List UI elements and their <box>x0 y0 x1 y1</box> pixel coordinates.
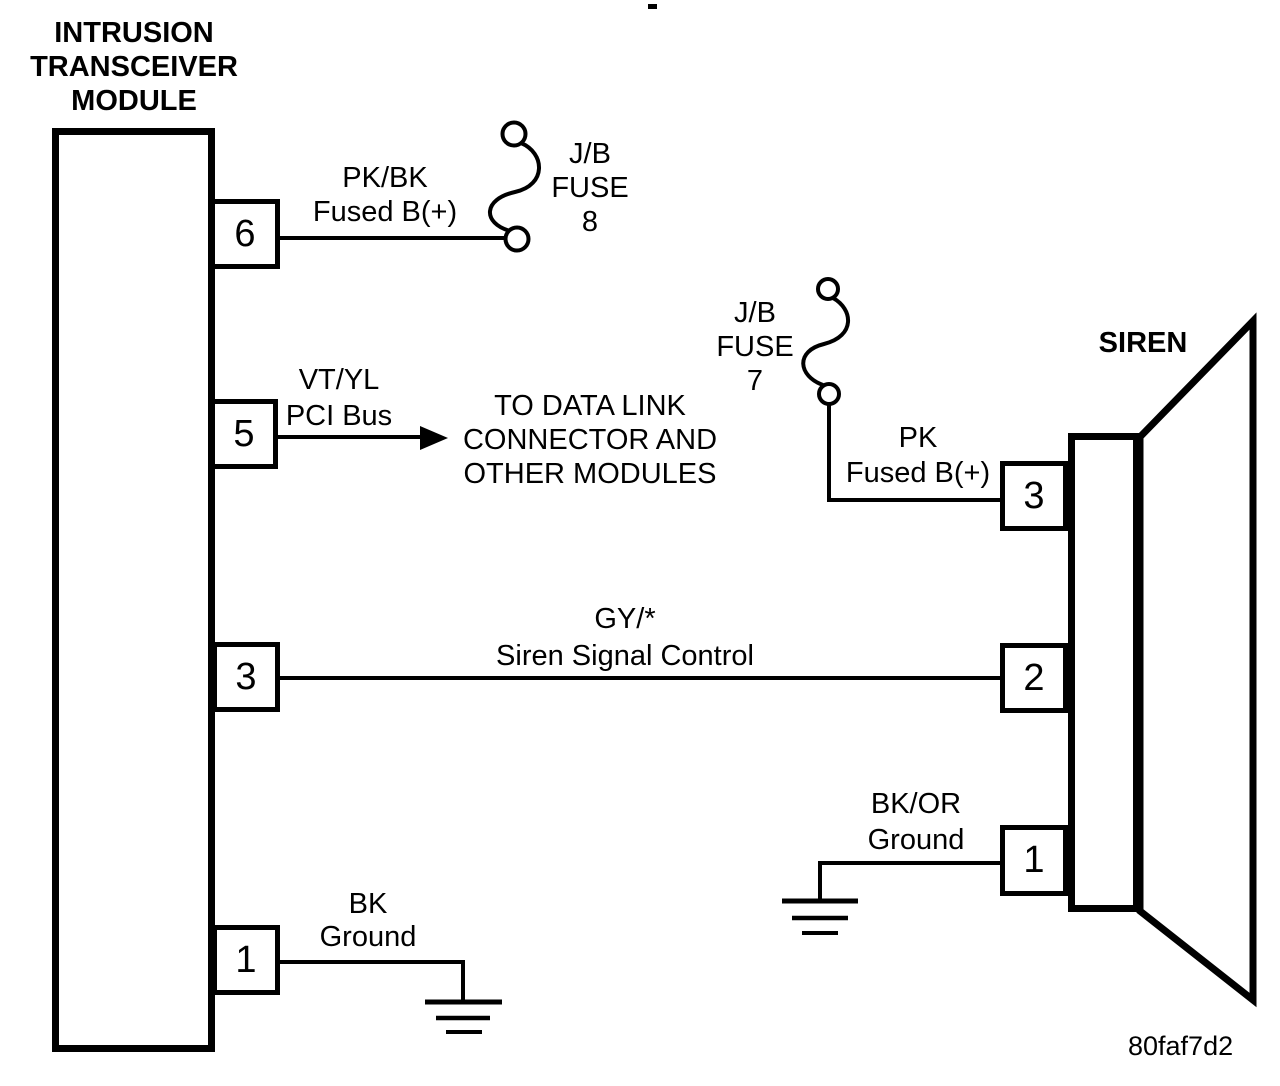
siren-horn <box>1140 321 1253 1000</box>
wire-function: Fused B(+) <box>285 195 485 229</box>
module-pin-1-number: 1 <box>235 939 256 982</box>
wire-label-siren-ground: BK/OR Ground <box>816 786 1016 858</box>
fuse-number: 8 <box>515 205 665 239</box>
wire-label-fused-b-siren: PK Fused B(+) <box>818 421 1018 491</box>
wire-function: PCI Bus <box>239 398 439 434</box>
module-pin-6-number: 6 <box>234 213 255 256</box>
wire-siren-ground <box>820 863 1002 900</box>
figure-code: 80faf7d2 <box>1128 1031 1268 1062</box>
siren-pin-2: 2 <box>1000 643 1068 713</box>
module-pin-3-number: 3 <box>235 656 256 699</box>
wire-color: PK <box>818 421 1018 456</box>
annotation-line3: OTHER MODULES <box>437 457 743 491</box>
siren-pin-2-number: 2 <box>1023 657 1044 700</box>
wire-label-module-ground: BK Ground <box>268 888 468 954</box>
wire-function: Ground <box>816 822 1016 858</box>
fuse-location: J/B <box>515 137 665 171</box>
wire-color: VT/YL <box>239 362 439 398</box>
ground-symbol-module <box>425 1002 502 1032</box>
wire-color: BK/OR <box>816 786 1016 822</box>
wire-module-ground <box>278 962 463 1001</box>
wiring-diagram: INTRUSION TRANSCEIVER MODULE SIREN 6 5 3… <box>0 0 1280 1086</box>
annotation-line2: CONNECTOR AND <box>437 423 743 457</box>
module-title: INTRUSION TRANSCEIVER MODULE <box>8 16 260 118</box>
module-outline <box>56 132 212 1049</box>
module-pin-6: 6 <box>210 199 280 269</box>
wire-label-siren-signal: GY/* Siren Signal Control <box>475 601 775 675</box>
data-link-annotation: TO DATA LINK CONNECTOR AND OTHER MODULES <box>437 389 743 491</box>
siren-pin-1-number: 1 <box>1023 839 1044 882</box>
wire-function: Fused B(+) <box>818 456 1018 491</box>
module-pin-3: 3 <box>212 642 280 712</box>
fuse-type: FUSE <box>515 171 665 205</box>
fuse-number: 7 <box>680 364 830 398</box>
fuse-type: FUSE <box>680 330 830 364</box>
fuse-location: J/B <box>680 296 830 330</box>
wire-function: Siren Signal Control <box>475 638 775 675</box>
fuse-7-label: J/B FUSE 7 <box>680 296 830 398</box>
scan-artifact <box>648 4 657 9</box>
module-title-line2: TRANSCEIVER <box>8 50 260 84</box>
wire-color: PK/BK <box>285 161 485 195</box>
ground-symbol-siren <box>782 901 858 933</box>
siren-title: SIREN <box>1043 326 1243 360</box>
wire-label-pci-bus: VT/YL PCI Bus <box>239 362 439 434</box>
module-title-line1: INTRUSION <box>8 16 260 50</box>
wire-function: Ground <box>268 921 468 954</box>
siren-pin-3-number: 3 <box>1023 475 1044 518</box>
fuse-8-label: J/B FUSE 8 <box>515 137 665 239</box>
siren-body <box>1072 437 1137 909</box>
wire-color: BK <box>268 888 468 921</box>
wire-color: GY/* <box>475 601 775 638</box>
wire-label-fused-b-module: PK/BK Fused B(+) <box>285 161 485 229</box>
module-title-line3: MODULE <box>8 84 260 118</box>
